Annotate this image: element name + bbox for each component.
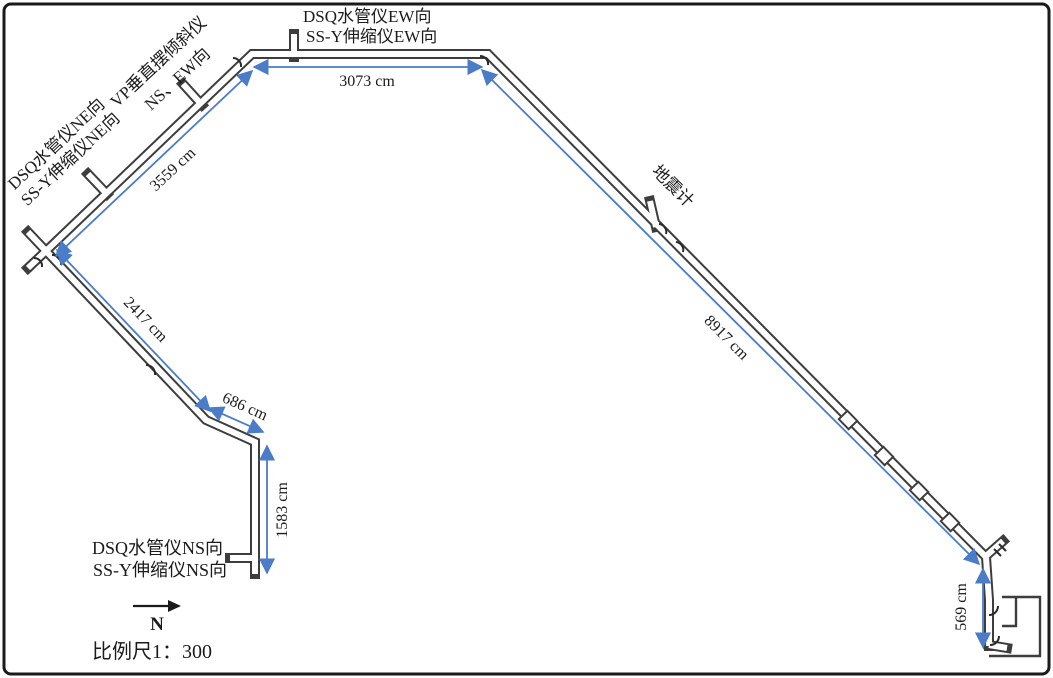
label-dsq-water-tube-ns: DSQ水管仪NS向: [92, 538, 223, 558]
label-ssy-extensometer-ew: SS-Y伸缩仪EW向: [306, 27, 437, 46]
dimension-label-1583: 1583 cm: [274, 482, 291, 538]
figure-canvas: 3559 cm 3073 cm 8917 cm 2417 cm 686 cm 1…: [0, 0, 1053, 678]
site-plan-svg: 3559 cm 3073 cm 8917 cm 2417 cm 686 cm 1…: [0, 0, 1053, 678]
label-ssy-extensometer-ns: SS-Y伸缩仪NS向: [93, 560, 227, 580]
dimension-label-3073: 3073 cm: [339, 73, 395, 90]
north-label: N: [150, 614, 164, 635]
dimension-label-569: 569 cm: [953, 583, 970, 631]
scale-label: 比例尺1：300: [92, 640, 212, 663]
label-dsq-water-tube-ew: DSQ水管仪EW向: [303, 7, 431, 26]
